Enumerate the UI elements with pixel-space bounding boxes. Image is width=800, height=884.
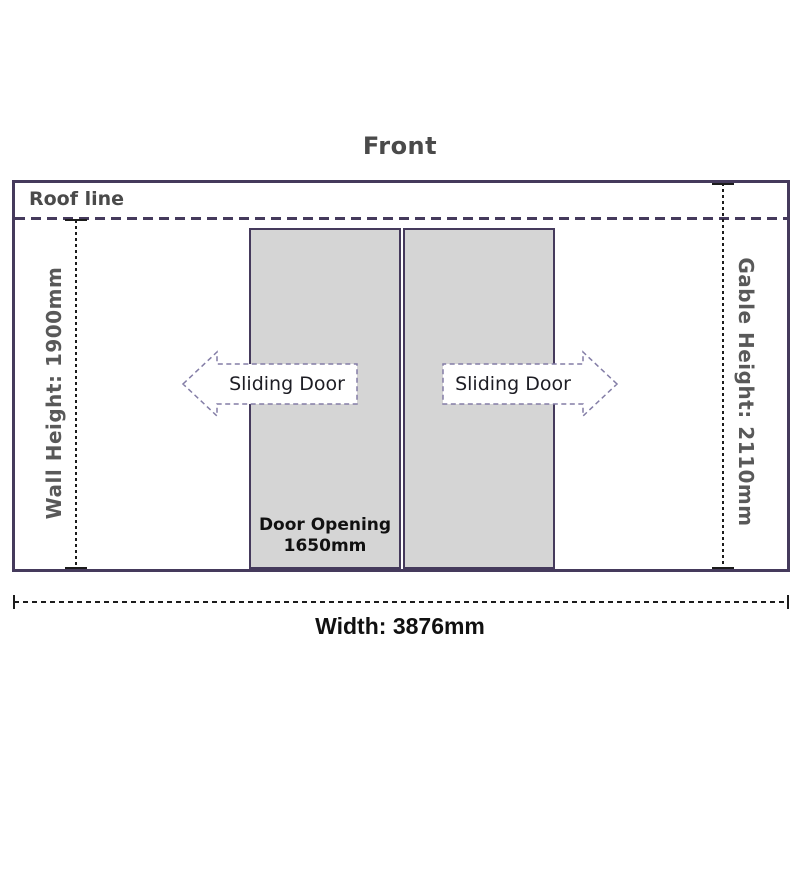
building-outline: Roof line Door Opening 1650mm Sliding Do…	[12, 180, 790, 572]
front-elevation-diagram: Front Roof line Door Opening 1650mm Slid…	[0, 0, 800, 884]
door-opening-size: 1650mm	[249, 536, 401, 557]
gable-height-bottom-tick	[712, 567, 734, 569]
gable-height-dimension-line	[722, 183, 724, 569]
diagram-title: Front	[0, 132, 800, 160]
wall-height-bottom-tick	[65, 567, 87, 569]
roof-line-dashed	[15, 217, 787, 220]
door-opening-label: Door Opening 1650mm	[249, 515, 401, 557]
width-left-tick	[13, 595, 15, 609]
gable-height-top-tick	[712, 183, 734, 185]
wall-height-label: Wall Height: 1900mm	[42, 253, 66, 533]
door-opening-text: Door Opening	[249, 515, 401, 536]
wall-height-dimension-line	[75, 220, 77, 569]
width-dimension-line	[14, 601, 788, 603]
width-right-tick	[787, 595, 789, 609]
gable-height-label: Gable Height: 2110mm	[734, 252, 758, 532]
wall-height-top-tick	[65, 219, 87, 221]
width-label: Width: 3876mm	[0, 613, 800, 640]
sliding-door-left-label: Sliding Door	[217, 364, 357, 404]
roof-line-label: Roof line	[29, 188, 124, 210]
sliding-door-right-label: Sliding Door	[443, 364, 583, 404]
